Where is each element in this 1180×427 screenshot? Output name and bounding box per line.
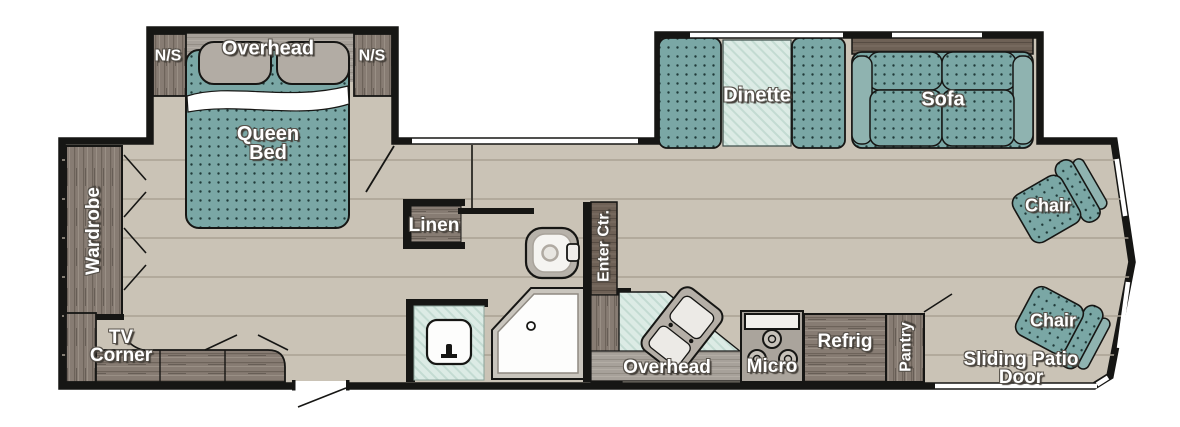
dinette-bench-right [792,38,845,148]
nightstand-right [354,34,392,96]
entry-door-opening [295,381,347,391]
floorplan-svg [0,0,1180,427]
tv-cabinet-column [66,313,96,382]
wardrobe [66,146,122,316]
toilet [526,228,579,278]
bath-wall-right [583,202,591,297]
refrigerator [804,314,886,382]
bath-wall-top [458,208,534,214]
range-microwave [741,311,803,382]
shower-drain [527,322,535,330]
dinette-bench-left [659,38,721,148]
tv-cabinet-row [96,350,285,382]
linen-closet [411,206,461,242]
vanity-sink [414,306,484,380]
pillow-right [277,42,349,84]
nightstand-left [153,34,186,96]
pantry [886,314,924,382]
sofa [852,38,1033,148]
rv-floorplan: N/S Overhead N/S Queen Bed Wardrobe TV C… [0,0,1180,427]
pillow-left [199,42,271,84]
dinette-table [723,40,791,146]
